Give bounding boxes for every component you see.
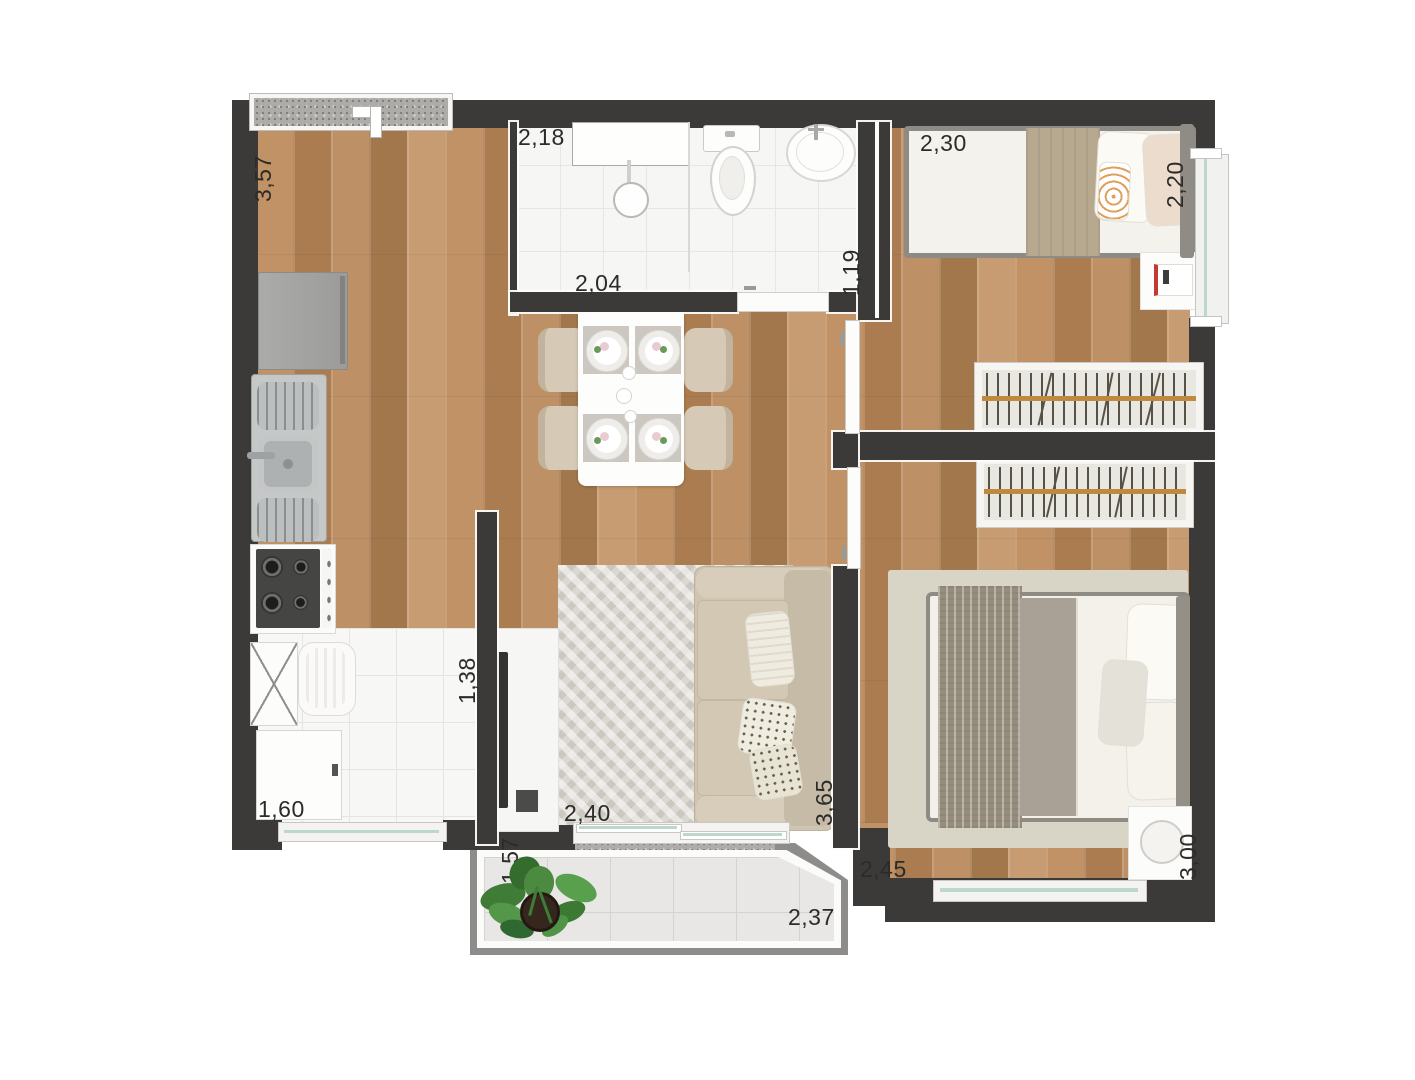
- wall-bathroom-left: [510, 122, 517, 314]
- bath-faucet: [814, 124, 818, 140]
- sink-drainboard-top: [257, 382, 319, 430]
- fridge: [258, 272, 348, 370]
- plate: [638, 330, 680, 372]
- wall-bottom-left: [232, 820, 282, 850]
- bathroom-door: [737, 292, 829, 312]
- kitchen-window: [250, 94, 452, 130]
- shower-box: [572, 122, 690, 166]
- dim-balcony-width: 2,37: [788, 906, 835, 929]
- sink-drainboard-bottom: [257, 498, 319, 542]
- dining-chair: [684, 406, 733, 470]
- dim-bathroom-inner-width: 2,04: [575, 272, 622, 295]
- dim-bedroom2-width: 2,45: [860, 858, 907, 881]
- wall-bathroom-bottom-left: [510, 292, 737, 312]
- plate-leaf: [660, 346, 667, 353]
- laundry-basket-slats: [306, 648, 346, 708]
- bath-faucet-handle: [808, 128, 824, 131]
- dim-bedroom2-depth: 3,00: [1177, 834, 1200, 880]
- window-handle: [370, 106, 382, 138]
- laundry-tub: [250, 642, 298, 726]
- dim-bedroom1-depth: 2,20: [1164, 130, 1187, 208]
- bedroom1-door: [845, 320, 860, 434]
- dim-service-width: 1,60: [258, 798, 305, 821]
- burner-3: [261, 592, 283, 614]
- plate-flower: [600, 432, 609, 441]
- wall-bedroom-divider: [845, 432, 1215, 460]
- sliding-door-glass: [683, 833, 782, 836]
- plate-leaf: [594, 346, 601, 353]
- single-bed-blanket: [1026, 128, 1100, 256]
- plate: [586, 330, 628, 372]
- bedroom1-door-handle: [840, 332, 844, 346]
- sink-faucet: [247, 452, 275, 459]
- dim-kitchen-side: 3,57: [252, 132, 275, 202]
- plate-flower: [600, 342, 609, 351]
- plate-leaf: [660, 437, 667, 444]
- shower-head: [613, 182, 649, 218]
- bedroom1-window: [1195, 154, 1229, 324]
- table-decor: [622, 366, 636, 380]
- bedroom2-door-handle: [842, 546, 846, 560]
- bedroom2-door: [847, 467, 861, 569]
- burner-1: [261, 556, 283, 578]
- bedroom1-window-sill: [1190, 316, 1222, 327]
- wall-living-bedroom2-upper: [833, 432, 858, 468]
- toilet-flush-button: [725, 131, 735, 137]
- bath-sink-inner: [796, 132, 844, 172]
- deco-pillow-rainbow: [1097, 161, 1132, 221]
- dim-service-depth: 1,38: [456, 634, 479, 704]
- bedroom1-window-glass: [1204, 158, 1207, 318]
- burner-4: [293, 595, 308, 610]
- tv: [497, 652, 508, 808]
- stove-knobs: [322, 549, 332, 628]
- dim-bedroom1-width: 2,30: [920, 132, 967, 155]
- dim-living-depth: 3,65: [813, 772, 836, 826]
- book-figure: [1163, 270, 1169, 284]
- table-decor: [616, 388, 632, 404]
- dining-chair: [684, 328, 733, 392]
- toilet-bowl-inner: [719, 156, 745, 200]
- bathroom-door-handle: [744, 286, 756, 290]
- book: [1154, 264, 1193, 296]
- dim-bathroom-width: 2,18: [518, 126, 565, 149]
- double-bed-headboard: [1176, 596, 1190, 818]
- plant: [480, 856, 600, 952]
- dim-bathroom-depth: 1,19: [840, 244, 863, 296]
- double-bed-small-pillow: [1097, 659, 1149, 748]
- fridge-handle: [340, 276, 345, 364]
- media-box: [516, 790, 538, 812]
- wardrobe1-rod: [982, 396, 1196, 401]
- bedroom2-window-glass: [940, 888, 1138, 892]
- sofa-pillow-leaf: [748, 742, 804, 802]
- double-bed-duvet: [1020, 598, 1078, 816]
- bedroom1-window-sill: [1190, 148, 1222, 159]
- sink-drain: [283, 459, 293, 469]
- floor-plan: 3,57 2,18 2,04 1,19 2,30 2,20 1,38 1,60 …: [0, 0, 1415, 1080]
- dim-living-width: 2,40: [564, 802, 611, 825]
- service-window-glass: [284, 830, 439, 833]
- double-bed-throw: [938, 586, 1022, 828]
- shower-partition: [688, 122, 690, 272]
- wall-tv: [477, 512, 497, 844]
- washing-machine-latch: [332, 764, 338, 776]
- sliding-door-glass: [579, 826, 677, 829]
- burner-2: [293, 559, 309, 575]
- sofa-pillow-striped: [744, 610, 795, 688]
- plate-leaf: [594, 437, 601, 444]
- wardrobe2-rod: [984, 489, 1186, 494]
- wall-seam: [875, 122, 879, 318]
- table-decor: [624, 410, 637, 423]
